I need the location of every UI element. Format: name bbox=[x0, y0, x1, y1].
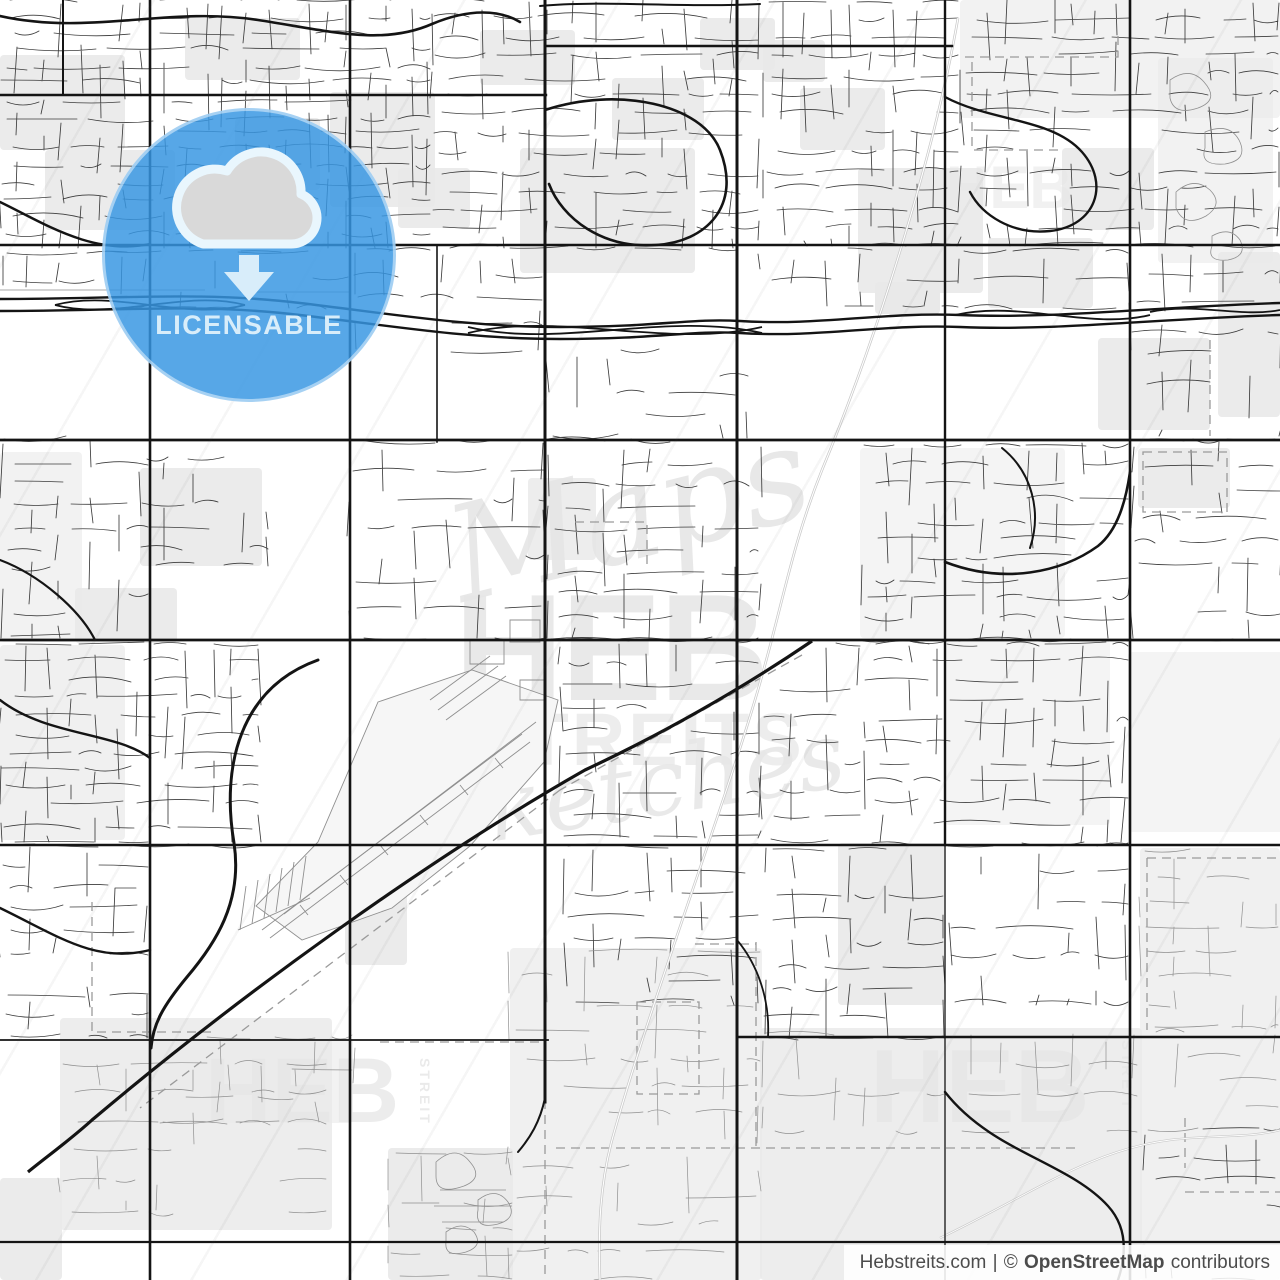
street-block bbox=[948, 843, 1128, 1006]
download-arrow-icon bbox=[224, 255, 274, 301]
landuse-area bbox=[1128, 652, 1280, 832]
cloud-download-icon bbox=[105, 111, 399, 405]
landuse-area bbox=[1140, 848, 1280, 1280]
landuse-area bbox=[0, 645, 125, 840]
landuse-area bbox=[860, 448, 1065, 638]
attribution-source: OpenStreetMap bbox=[1024, 1252, 1164, 1274]
collector-road bbox=[151, 660, 318, 1048]
landuse-area bbox=[480, 30, 575, 85]
landuse-area bbox=[800, 88, 885, 150]
landuse-area bbox=[612, 78, 704, 140]
attribution-copyright: © bbox=[1004, 1252, 1018, 1274]
map-poster: Maps HEB STREITS Sketches HEB STREIT HEB… bbox=[0, 0, 1280, 1280]
landuse-area bbox=[945, 640, 1110, 825]
landuse-area bbox=[1098, 338, 1210, 430]
licensable-badge: LICENSABLE bbox=[102, 108, 396, 402]
watermark-tile-side-bottom-left: STREIT bbox=[417, 1058, 433, 1126]
landuse-area bbox=[388, 1148, 513, 1280]
cloud-icon bbox=[177, 152, 317, 244]
landuse-area bbox=[1218, 252, 1280, 417]
landuse-area bbox=[838, 843, 946, 1005]
landuse-area bbox=[0, 452, 82, 642]
landuse-area bbox=[398, 168, 470, 228]
landuse-area bbox=[1158, 58, 1273, 263]
watermark-tile-heb-bottom-right: HEB bbox=[870, 1029, 1090, 1145]
landuse-area bbox=[1138, 448, 1230, 508]
watermark-tile-heb-bottom-left: HEB bbox=[205, 1040, 399, 1142]
attribution-suffix: contributors bbox=[1171, 1252, 1270, 1274]
badge-label: LICENSABLE bbox=[105, 310, 393, 341]
freeway-interchange bbox=[468, 326, 762, 334]
attribution-divider: | bbox=[993, 1252, 998, 1274]
landuse-area bbox=[0, 1178, 62, 1280]
attribution-site: Hebstreits.com bbox=[860, 1252, 987, 1274]
attribution-bar: Hebstreits.com | © OpenStreetMap contrib… bbox=[844, 1245, 1280, 1280]
landuse-area bbox=[75, 588, 177, 643]
street-block bbox=[0, 842, 148, 1039]
